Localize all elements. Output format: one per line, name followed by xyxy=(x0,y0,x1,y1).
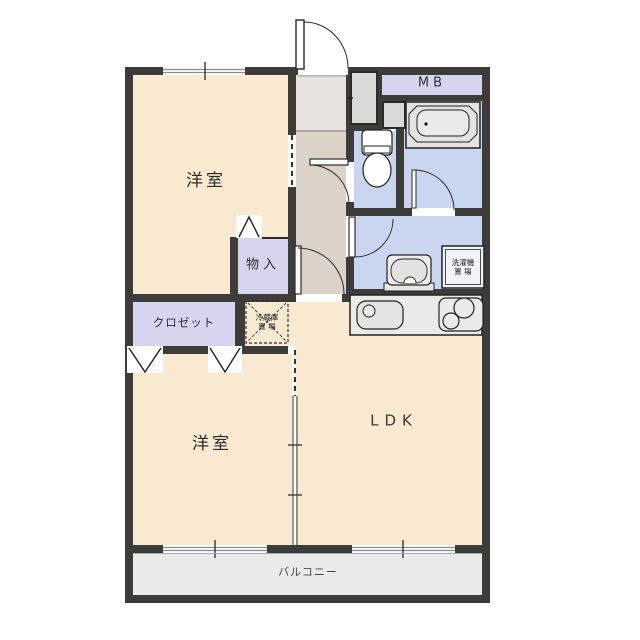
bedroom-bottom-label: 洋室 xyxy=(192,435,232,455)
window-opening xyxy=(163,545,267,553)
closet-door-opening xyxy=(208,346,242,373)
washer-space-label: 洗濯機 置 場 xyxy=(452,258,475,276)
closet-door-opening xyxy=(127,346,163,373)
storage-label: 物入 xyxy=(246,259,280,274)
balcony-label: バルコニー xyxy=(278,567,338,580)
toilet-door-opening xyxy=(346,162,354,202)
washroom-door-opening xyxy=(346,216,354,257)
washer-space-label-line2: 置 場 xyxy=(452,267,475,276)
wall-segment xyxy=(346,289,490,297)
shoe-cabinet xyxy=(350,71,378,125)
toilet-floor xyxy=(354,131,396,208)
window-opening xyxy=(163,67,245,75)
washroom-floor xyxy=(354,216,482,289)
window-opening xyxy=(352,545,455,553)
utility-box xyxy=(382,101,406,129)
ldk-label: LDK xyxy=(370,412,418,429)
bathroom-floor xyxy=(404,101,482,208)
doorway-opening xyxy=(296,294,342,302)
fridge-space-label: 冷蔵庫 置 場 xyxy=(256,313,279,331)
meter-box-label: MB xyxy=(418,77,446,92)
hallway-floor xyxy=(296,131,346,302)
wall-segment xyxy=(482,67,490,603)
fridge-space-label-line2: 置 場 xyxy=(256,322,279,331)
wall-segment xyxy=(125,595,490,603)
floor-plan: 洋室 洋室 LDK 物入 クロゼット MB バルコニー 冷蔵庫 置 場 洗濯機 … xyxy=(0,0,640,640)
wall-segment xyxy=(125,67,133,603)
sliding-opening xyxy=(288,135,296,187)
closet-label: クロゼット xyxy=(153,316,216,329)
fridge-space-label-line1: 冷蔵庫 xyxy=(256,313,279,322)
entrance-opening xyxy=(298,67,348,75)
bath-door-opening xyxy=(412,208,455,216)
bedroom-top-label: 洋室 xyxy=(186,172,226,192)
wall-segment xyxy=(235,302,245,346)
washer-space-label-line1: 洗濯機 xyxy=(452,258,475,267)
wall-segment xyxy=(230,237,238,302)
entry-floor xyxy=(296,75,346,131)
storage-door-opening xyxy=(236,215,262,238)
